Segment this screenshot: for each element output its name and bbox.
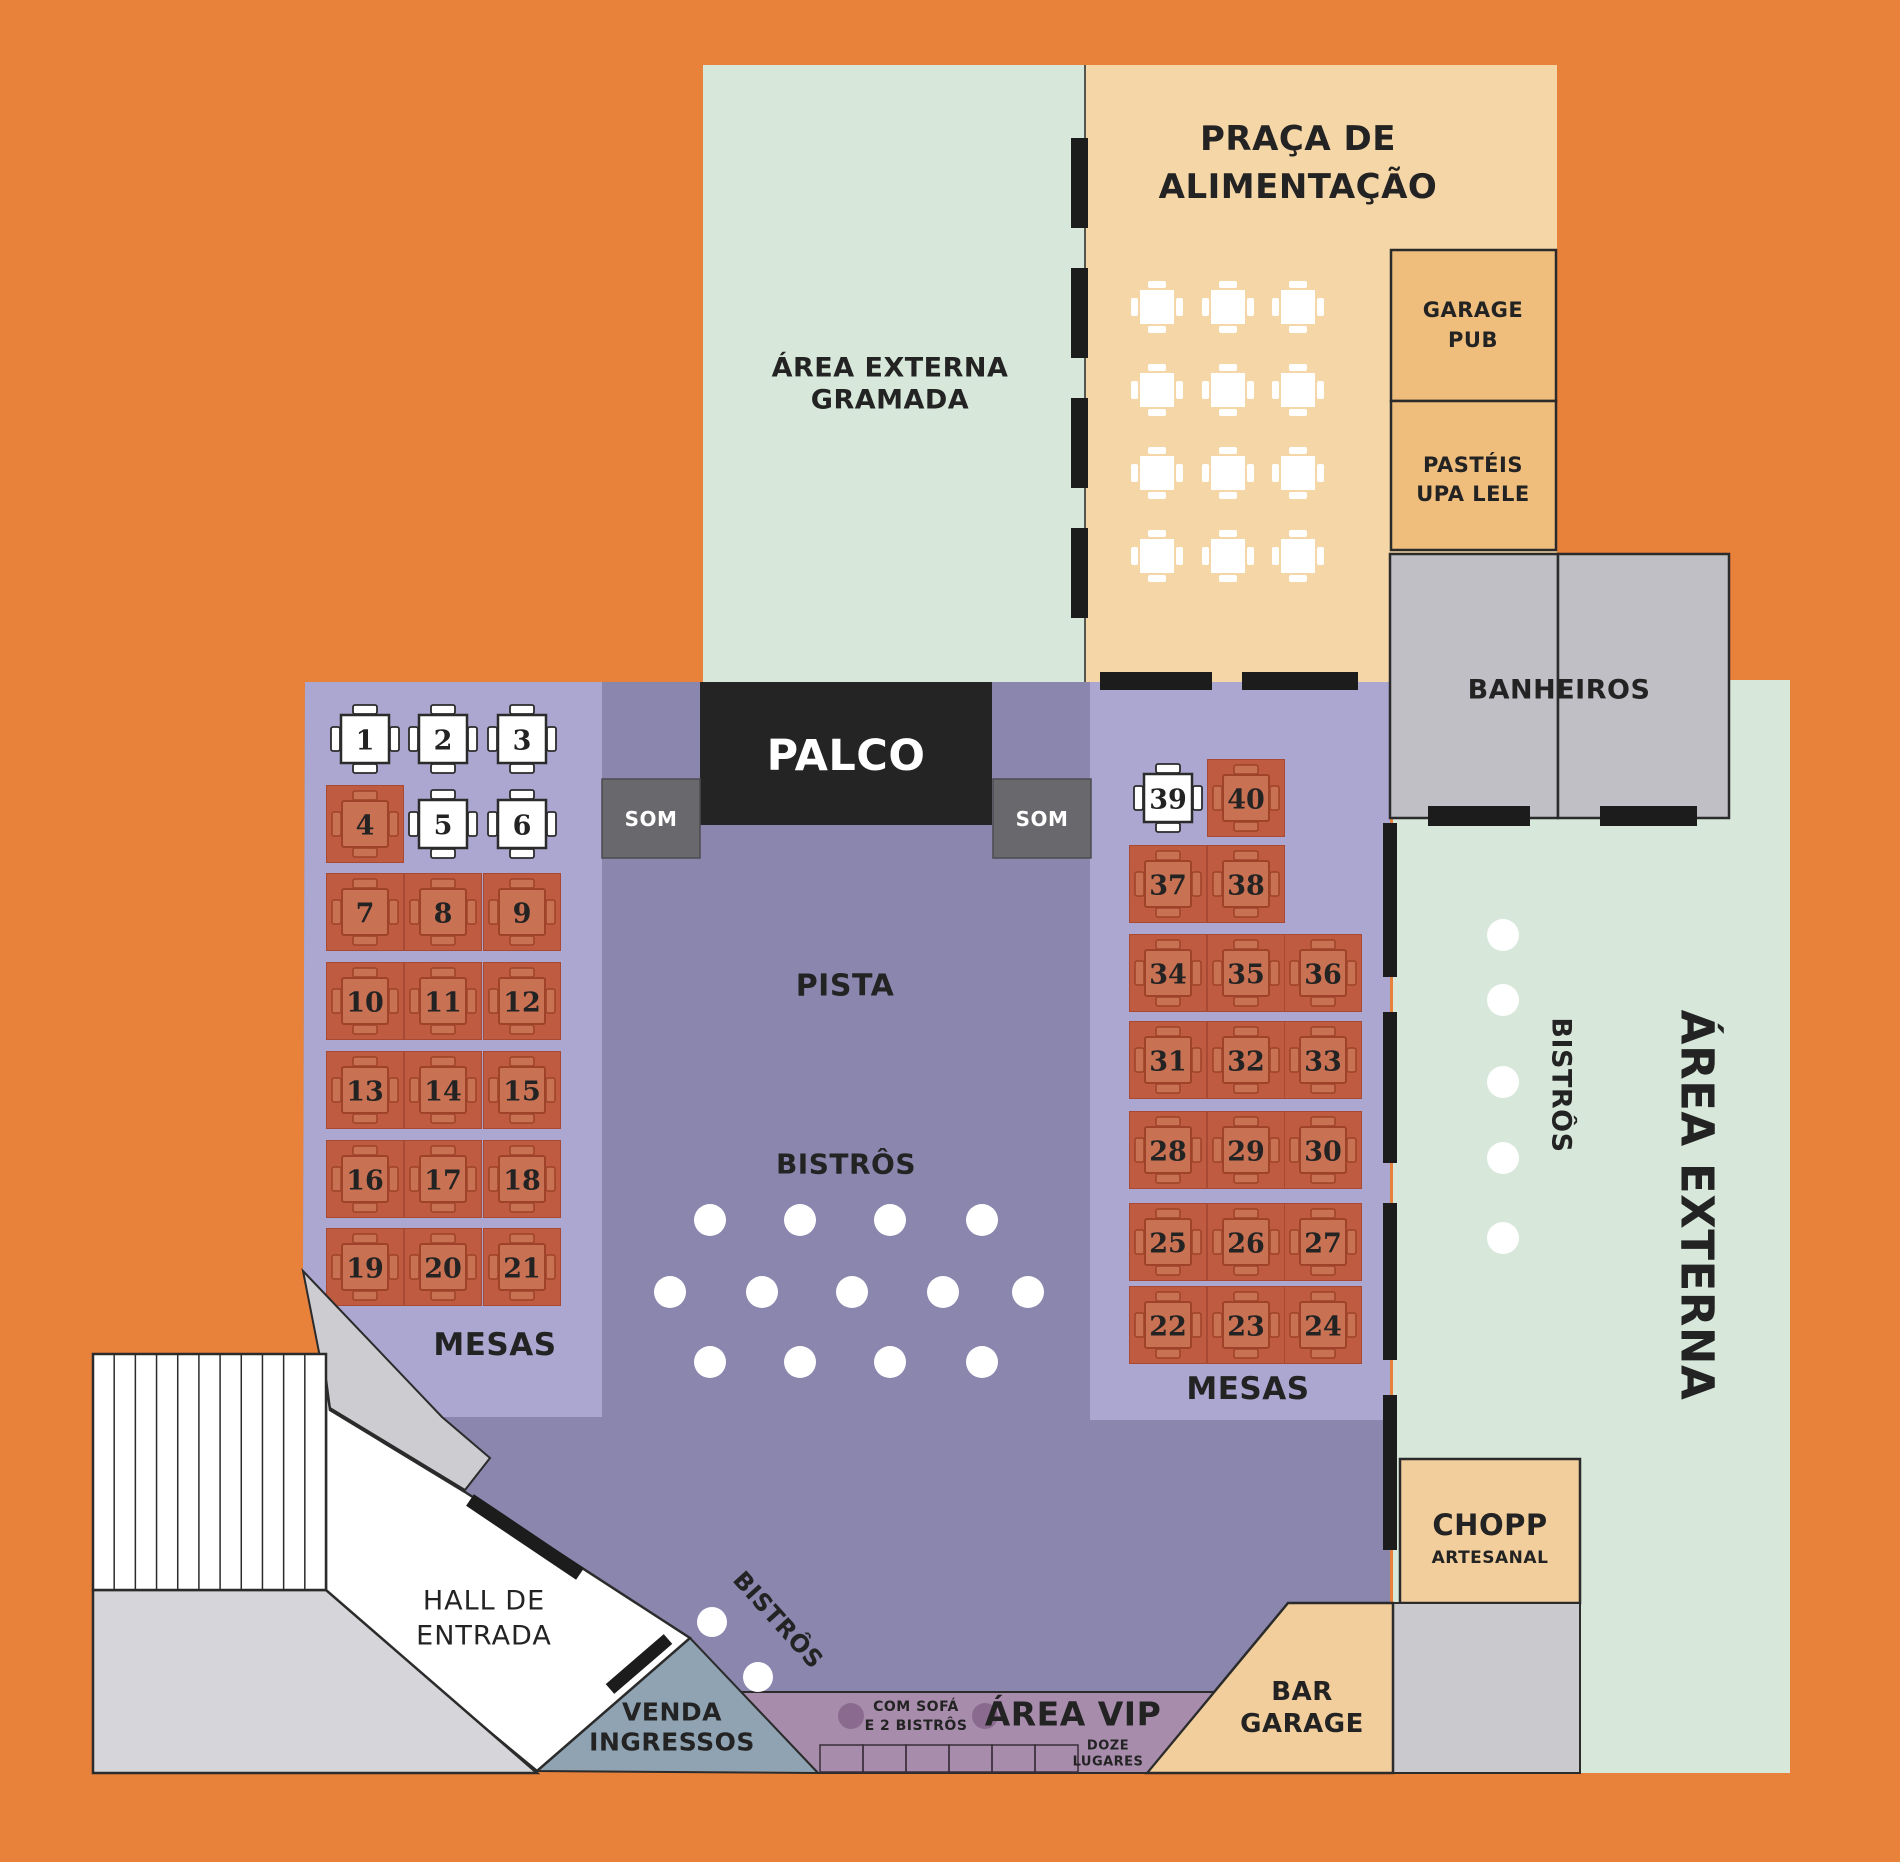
table-number: 13 (346, 1077, 384, 1108)
chair-icon (431, 849, 455, 858)
vip-cap-line2: LUGARES (1073, 1755, 1144, 1770)
chair-icon (353, 1203, 377, 1212)
table-27-occupied[interactable]: 27 (1285, 1204, 1362, 1281)
chair-icon (410, 989, 419, 1013)
table-34-occupied[interactable]: 34 (1130, 935, 1207, 1012)
chair-icon (389, 1167, 398, 1191)
chair-icon (1247, 547, 1254, 565)
chair-icon (1192, 1138, 1201, 1162)
chair-icon (1156, 908, 1180, 917)
chair-icon (332, 1255, 341, 1279)
chair-icon (1148, 530, 1166, 537)
table-number: 11 (424, 988, 462, 1019)
table-36-occupied[interactable]: 36 (1285, 935, 1362, 1012)
chair-icon (1176, 298, 1183, 316)
table-number: 35 (1227, 960, 1265, 991)
table-number: 28 (1149, 1137, 1187, 1168)
chair-icon (1311, 1084, 1335, 1093)
bistro-dot[interactable] (1487, 1142, 1519, 1174)
chair-icon (467, 900, 476, 924)
table-number: 6 (513, 811, 532, 842)
chair-icon (510, 1203, 534, 1212)
chair-icon (353, 1057, 377, 1066)
chair-icon (353, 936, 377, 945)
chair-icon (431, 879, 455, 888)
restroom-door-bar (1428, 806, 1530, 826)
chair-icon (1272, 547, 1279, 565)
table-20-occupied[interactable]: 20 (405, 1229, 482, 1306)
table-top (1140, 456, 1174, 490)
chair-icon (1219, 281, 1237, 288)
chair-icon (489, 1167, 498, 1191)
chair-icon (1289, 326, 1307, 333)
chair-icon (467, 989, 476, 1013)
chair-icon (431, 936, 455, 945)
table-17-occupied[interactable]: 17 (405, 1141, 482, 1218)
chair-icon (1176, 381, 1183, 399)
table-14-occupied[interactable]: 14 (405, 1052, 482, 1129)
table-top (1281, 539, 1315, 573)
chair-icon (1311, 1349, 1335, 1358)
chair-icon (1213, 1230, 1222, 1254)
table-15-occupied[interactable]: 15 (484, 1052, 561, 1129)
table-24-occupied[interactable]: 24 (1285, 1287, 1362, 1364)
chair-icon (1156, 764, 1180, 773)
chair-icon (1290, 1048, 1299, 1072)
chair-icon (1289, 281, 1307, 288)
bistro-dot[interactable] (1012, 1276, 1044, 1308)
table-number: 22 (1149, 1312, 1187, 1343)
table-23-occupied[interactable]: 23 (1208, 1287, 1285, 1364)
chair-icon (1234, 1117, 1258, 1126)
service-gray-box (1393, 1603, 1580, 1773)
praca-label-line1: PRAÇA DE (1200, 119, 1396, 159)
chair-icon (410, 1078, 419, 1102)
chair-icon (546, 900, 555, 924)
table-number: 10 (346, 988, 384, 1019)
table-top (1211, 539, 1245, 573)
chair-icon (1234, 1349, 1258, 1358)
chair-icon (1311, 1292, 1335, 1301)
table-number: 2 (434, 726, 453, 757)
chair-icon (431, 968, 455, 977)
chair-icon (1234, 851, 1258, 860)
chair-icon (1202, 381, 1209, 399)
chair-icon (1317, 381, 1324, 399)
chair-icon (467, 1255, 476, 1279)
pasteis-line1: PASTÉIS (1423, 452, 1523, 477)
table-number: 9 (513, 899, 532, 930)
chair-icon (1247, 464, 1254, 482)
chair-icon (1135, 1048, 1144, 1072)
stairs (93, 1354, 326, 1590)
table-40-occupied[interactable]: 40 (1208, 760, 1285, 837)
chair-icon (1289, 447, 1307, 454)
chair-icon (410, 900, 419, 924)
table-top (1140, 290, 1174, 324)
chair-icon (389, 1078, 398, 1102)
table-number: 38 (1227, 871, 1265, 902)
chair-icon (1156, 851, 1180, 860)
chair-icon (1347, 1230, 1356, 1254)
bistro-dot[interactable] (694, 1346, 726, 1378)
chair-icon (1289, 364, 1307, 371)
chair-icon (1192, 1230, 1201, 1254)
chair-icon (1289, 530, 1307, 537)
bistro-dot[interactable] (1487, 984, 1519, 1016)
chair-icon (1290, 1230, 1299, 1254)
vip-bistro-dot (838, 1703, 864, 1729)
table-number: 40 (1227, 785, 1265, 816)
chair-icon (1134, 786, 1143, 810)
chair-icon (1289, 575, 1307, 582)
chair-icon (1219, 326, 1237, 333)
chair-icon (1213, 1313, 1222, 1337)
chair-icon (1219, 409, 1237, 416)
chair-icon (1270, 1048, 1279, 1072)
chair-icon (1311, 1266, 1335, 1275)
chair-icon (1311, 1027, 1335, 1036)
table-32-occupied[interactable]: 32 (1208, 1022, 1285, 1099)
bistro-dot[interactable] (784, 1204, 816, 1236)
praca-label-line2: ALIMENTAÇÃO (1159, 166, 1438, 207)
chair-icon (1202, 298, 1209, 316)
table-top (1281, 290, 1315, 324)
chair-icon (1289, 409, 1307, 416)
table-number: 33 (1304, 1047, 1342, 1078)
table-9-occupied[interactable]: 9 (484, 874, 561, 951)
chair-icon (431, 1234, 455, 1243)
bar-garage-line1: BAR (1271, 1677, 1332, 1707)
chair-icon (1234, 908, 1258, 917)
chair-icon (510, 705, 534, 714)
som-left-label: SOM (625, 807, 678, 831)
table-29-occupied[interactable]: 29 (1208, 1112, 1285, 1189)
chair-icon (510, 1234, 534, 1243)
chair-icon (1193, 786, 1202, 810)
table-number: 34 (1149, 960, 1187, 991)
chair-icon (1311, 1209, 1335, 1218)
table-number: 17 (424, 1166, 462, 1197)
chair-icon (1202, 547, 1209, 565)
chair-icon (431, 1025, 455, 1034)
table-22-occupied[interactable]: 22 (1130, 1287, 1207, 1364)
chair-icon (1311, 940, 1335, 949)
chair-icon (1156, 1117, 1180, 1126)
table-number: 5 (434, 811, 453, 842)
table-3-free[interactable]: 3 (488, 705, 556, 773)
chair-icon (1148, 409, 1166, 416)
wall-bar (1383, 1203, 1397, 1360)
table-37-occupied[interactable]: 37 (1130, 846, 1207, 923)
chair-icon (332, 812, 341, 836)
bistro-dot[interactable] (697, 1607, 727, 1637)
table-number: 14 (424, 1077, 462, 1108)
pasteis-line2: UPA LELE (1416, 482, 1530, 506)
chair-icon (1156, 940, 1180, 949)
table-13-occupied[interactable]: 13 (327, 1052, 404, 1129)
chair-icon (353, 1114, 377, 1123)
chair-icon (1213, 961, 1222, 985)
chair-icon (1317, 298, 1324, 316)
wall-bar (1071, 528, 1088, 618)
table-8-occupied[interactable]: 8 (405, 874, 482, 951)
chair-icon (546, 1255, 555, 1279)
table-7-occupied[interactable]: 7 (327, 874, 404, 951)
table-number: 32 (1227, 1047, 1265, 1078)
chair-icon (1131, 464, 1138, 482)
chair-icon (1131, 547, 1138, 565)
table-33-occupied[interactable]: 33 (1285, 1022, 1362, 1099)
hall-line1: HALL DE (423, 1586, 545, 1617)
chair-icon (510, 1146, 534, 1155)
chair-icon (1347, 1048, 1356, 1072)
wall-bar (1242, 672, 1358, 690)
chair-icon (1270, 1138, 1279, 1162)
table-30-occupied[interactable]: 30 (1285, 1112, 1362, 1189)
chair-icon (389, 812, 398, 836)
table-25-occupied[interactable]: 25 (1130, 1204, 1207, 1281)
chair-icon (353, 1146, 377, 1155)
chair-icon (1234, 997, 1258, 1006)
chair-icon (1234, 1174, 1258, 1183)
garage-pub-box (1391, 250, 1556, 401)
venue-floor-plan: ÁREA EXTERNA GRAMADA PRAÇA DE ALIMENTAÇÃ… (0, 0, 1900, 1862)
chair-icon (1317, 547, 1324, 565)
chair-icon (431, 790, 455, 799)
vip-sofa-line2: E 2 BISTRÔS (865, 1716, 968, 1734)
chair-icon (1219, 575, 1237, 582)
chair-icon (332, 900, 341, 924)
chair-icon (353, 848, 377, 857)
table-number: 18 (503, 1166, 541, 1197)
bistro-dot[interactable] (1487, 919, 1519, 951)
chair-icon (1219, 364, 1237, 371)
table-35-occupied[interactable]: 35 (1208, 935, 1285, 1012)
chair-icon (489, 989, 498, 1013)
bistro-dot[interactable] (966, 1204, 998, 1236)
chair-icon (1234, 1084, 1258, 1093)
chair-icon (1219, 492, 1237, 499)
som-right-label: SOM (1016, 807, 1069, 831)
hall-line2: ENTRADA (416, 1621, 552, 1652)
chair-icon (1156, 823, 1180, 832)
table-number: 1 (356, 726, 375, 757)
table-38-occupied[interactable]: 38 (1208, 846, 1285, 923)
table-number: 8 (434, 899, 453, 930)
table-number: 12 (503, 988, 541, 1019)
table-39-free[interactable]: 39 (1134, 764, 1202, 832)
table-12-occupied[interactable]: 12 (484, 963, 561, 1040)
wall-bar (1071, 268, 1088, 358)
chair-icon (1289, 492, 1307, 499)
bistro-dot[interactable] (836, 1276, 868, 1308)
gramada-label-line1: ÁREA EXTERNA (772, 352, 1009, 384)
bistro-dot[interactable] (927, 1276, 959, 1308)
bistro-dot[interactable] (1487, 1066, 1519, 1098)
wall-bar (1383, 823, 1397, 977)
table-top (1140, 539, 1174, 573)
chair-icon (1311, 1117, 1335, 1126)
chair-icon (1270, 1313, 1279, 1337)
chair-icon (353, 1025, 377, 1034)
chair-icon (332, 1078, 341, 1102)
chair-icon (1270, 1230, 1279, 1254)
chair-icon (1135, 1313, 1144, 1337)
table-10-occupied[interactable]: 10 (327, 963, 404, 1040)
bistro-dot[interactable] (1487, 1222, 1519, 1254)
table-19-occupied[interactable]: 19 (327, 1229, 404, 1306)
chair-icon (1192, 961, 1201, 985)
table-number: 19 (346, 1254, 384, 1285)
chair-icon (1148, 575, 1166, 582)
chair-icon (1156, 1174, 1180, 1183)
chair-icon (1290, 1313, 1299, 1337)
chair-icon (546, 1167, 555, 1191)
chair-icon (1131, 298, 1138, 316)
table-28-occupied[interactable]: 28 (1130, 1112, 1207, 1189)
wall-bar (1383, 1395, 1397, 1550)
chair-icon (1219, 447, 1237, 454)
chair-icon (1270, 786, 1279, 810)
chair-icon (1192, 1313, 1201, 1337)
table-2-free[interactable]: 2 (409, 705, 477, 773)
chair-icon (1317, 464, 1324, 482)
chair-icon (1234, 765, 1258, 774)
garage-pub-line2: PUB (1448, 328, 1498, 352)
chair-icon (353, 1291, 377, 1300)
vip-cap-line1: DOZE (1087, 1739, 1129, 1754)
chopp-line1: CHOPP (1432, 1508, 1547, 1542)
bistro-dot[interactable] (874, 1204, 906, 1236)
table-16-occupied[interactable]: 16 (327, 1141, 404, 1218)
table-number: 20 (424, 1254, 462, 1285)
chair-icon (489, 1078, 498, 1102)
chair-icon (390, 727, 399, 751)
table-number: 30 (1304, 1137, 1342, 1168)
bistro-dot[interactable] (784, 1346, 816, 1378)
table-21-occupied[interactable]: 21 (484, 1229, 561, 1306)
chair-icon (389, 1255, 398, 1279)
chair-icon (1131, 381, 1138, 399)
bistro-dot[interactable] (743, 1662, 773, 1692)
chair-icon (1176, 464, 1183, 482)
table-number: 37 (1149, 871, 1187, 902)
chair-icon (1219, 530, 1237, 537)
chair-icon (546, 1078, 555, 1102)
chair-icon (410, 1255, 419, 1279)
table-top (1211, 373, 1245, 407)
chair-icon (1156, 1266, 1180, 1275)
chair-icon (1311, 997, 1335, 1006)
table-number: 24 (1304, 1312, 1342, 1343)
table-number: 23 (1227, 1312, 1265, 1343)
chair-icon (1234, 1266, 1258, 1275)
chair-icon (1148, 492, 1166, 499)
garage-pub-line1: GARAGE (1423, 298, 1524, 322)
chair-icon (1234, 1292, 1258, 1301)
chair-icon (353, 879, 377, 888)
chair-icon (1192, 872, 1201, 896)
chair-icon (431, 1203, 455, 1212)
bar-garage-line2: GARAGE (1240, 1709, 1364, 1739)
chair-icon (1213, 1048, 1222, 1072)
chair-icon (1156, 1349, 1180, 1358)
bistro-dot[interactable] (694, 1204, 726, 1236)
chair-icon (1270, 872, 1279, 896)
chair-icon (1234, 1209, 1258, 1218)
chair-icon (1213, 786, 1222, 810)
chair-icon (1156, 1292, 1180, 1301)
venda-line2: INGRESSOS (589, 1728, 755, 1757)
bistro-dot[interactable] (746, 1276, 778, 1308)
table-top (1140, 373, 1174, 407)
chair-icon (1234, 822, 1258, 831)
banheiros-label: BANHEIROS (1468, 675, 1651, 706)
chair-icon (431, 764, 455, 773)
table-number: 39 (1149, 785, 1187, 816)
bistro-dot[interactable] (966, 1346, 998, 1378)
chair-icon (510, 1025, 534, 1034)
chair-icon (1311, 1174, 1335, 1183)
table-number: 31 (1149, 1047, 1187, 1078)
chair-icon (389, 900, 398, 924)
table-18-occupied[interactable]: 18 (484, 1141, 561, 1218)
chair-icon (547, 727, 556, 751)
chair-icon (431, 1291, 455, 1300)
chair-icon (410, 1167, 419, 1191)
table-1-free[interactable]: 1 (331, 705, 399, 773)
chair-icon (547, 812, 556, 836)
chair-icon (331, 727, 340, 751)
chair-icon (1156, 997, 1180, 1006)
table-11-occupied[interactable]: 11 (405, 963, 482, 1040)
table-5-free[interactable]: 5 (409, 790, 477, 858)
table-4-occupied[interactable]: 4 (327, 786, 404, 863)
chair-icon (510, 1291, 534, 1300)
bistro-dot[interactable] (874, 1346, 906, 1378)
mesas-left-label: MESAS (433, 1327, 556, 1363)
table-6-free[interactable]: 6 (488, 790, 556, 858)
chair-icon (467, 1078, 476, 1102)
chair-icon (1148, 281, 1166, 288)
table-26-occupied[interactable]: 26 (1208, 1204, 1285, 1281)
table-31-occupied[interactable]: 31 (1130, 1022, 1207, 1099)
mesas-right-label: MESAS (1186, 1371, 1309, 1407)
area-externa-label: ÁREA EXTERNA (1671, 1010, 1724, 1401)
table-top (1211, 290, 1245, 324)
table-number: 3 (513, 726, 532, 757)
chair-icon (1247, 298, 1254, 316)
bistro-dot[interactable] (654, 1276, 686, 1308)
table-number: 16 (346, 1166, 384, 1197)
chair-icon (468, 812, 477, 836)
chair-icon (1272, 381, 1279, 399)
chair-icon (1176, 547, 1183, 565)
chair-icon (1135, 961, 1144, 985)
chair-icon (1148, 364, 1166, 371)
chair-icon (431, 705, 455, 714)
chair-icon (510, 968, 534, 977)
chair-icon (1234, 940, 1258, 949)
chair-icon (409, 727, 418, 751)
table-number: 26 (1227, 1229, 1265, 1260)
chair-icon (489, 1255, 498, 1279)
table-number: 29 (1227, 1137, 1265, 1168)
chair-icon (353, 1234, 377, 1243)
chair-icon (1290, 1138, 1299, 1162)
chair-icon (1213, 1138, 1222, 1162)
